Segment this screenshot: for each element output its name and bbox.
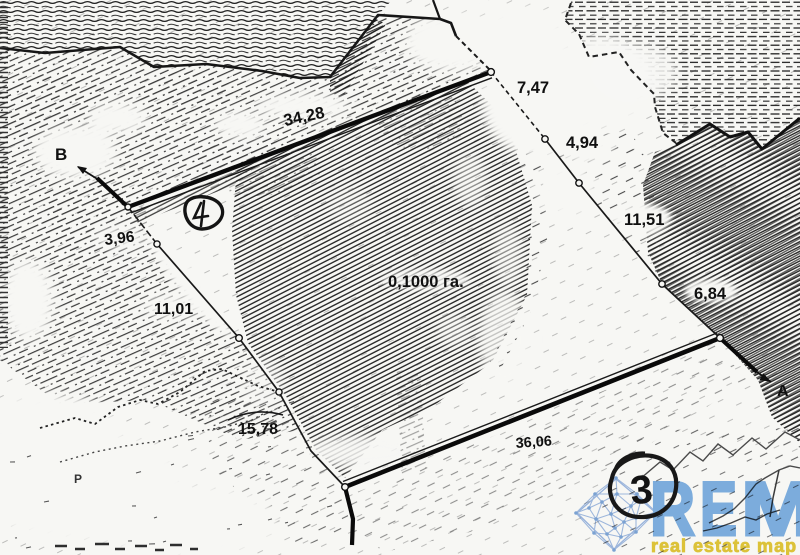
- svg-text:15,78: 15,78: [238, 421, 278, 438]
- svg-text:Р: Р: [74, 472, 82, 486]
- svg-text:0,1000 га.: 0,1000 га.: [388, 273, 464, 291]
- svg-text:real estate map: real estate map: [651, 536, 797, 555]
- svg-text:7,47: 7,47: [517, 79, 549, 97]
- svg-text:6,84: 6,84: [694, 285, 727, 303]
- svg-text:3: 3: [628, 467, 654, 513]
- svg-text:4,94: 4,94: [566, 134, 599, 152]
- svg-text:A: A: [777, 383, 789, 400]
- svg-text:B: B: [55, 145, 67, 164]
- svg-text:11,01: 11,01: [154, 301, 193, 318]
- svg-text:36,06: 36,06: [515, 433, 552, 451]
- svg-text:11,51: 11,51: [624, 211, 664, 229]
